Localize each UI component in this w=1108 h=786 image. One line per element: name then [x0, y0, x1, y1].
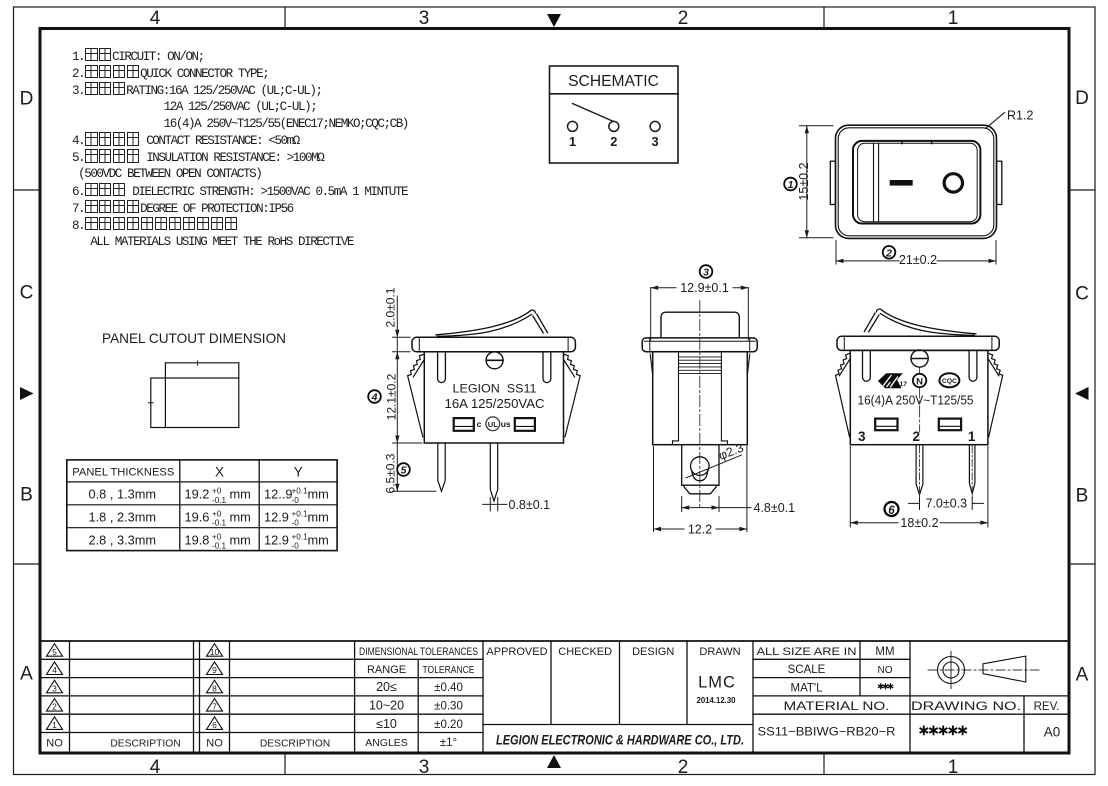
svg-text:-0: -0 [292, 542, 300, 551]
svg-text:12.1±0.2: 12.1±0.2 [385, 373, 399, 420]
svg-text:+0.1: +0.1 [292, 510, 309, 519]
svg-text:±0.40: ±0.40 [434, 682, 463, 694]
svg-text:2.0±0.1: 2.0±0.1 [384, 287, 398, 327]
svg-text:2: 2 [885, 248, 892, 260]
svg-text:19.2: 19.2 [185, 487, 210, 502]
svg-text:18±0.2: 18±0.2 [900, 516, 938, 530]
svg-text:C: C [1075, 284, 1089, 305]
svg-text:SCALE: SCALE [788, 664, 826, 676]
svg-text:SS11−BBIWG−RB20−R: SS11−BBIWG−RB20−R [758, 725, 896, 739]
svg-text:N: N [916, 376, 923, 387]
svg-text:RANGE: RANGE [367, 664, 406, 676]
svg-text:1: 1 [788, 179, 794, 191]
svg-text:DESIGN: DESIGN [632, 646, 674, 658]
svg-text:UL: UL [488, 420, 498, 429]
svg-text:CQC: CQC [942, 378, 957, 385]
svg-text:8: 8 [212, 683, 217, 693]
svg-text:A: A [1076, 665, 1089, 686]
svg-text:LMC: LMC [698, 674, 736, 692]
svg-text:Y: Y [294, 465, 303, 480]
svg-text:+0.1: +0.1 [292, 487, 309, 496]
svg-text:12.9±0.1: 12.9±0.1 [680, 281, 729, 295]
svg-text:TOLERANCE: TOLERANCE [423, 665, 475, 676]
svg-text:4: 4 [371, 392, 378, 404]
svg-text:5: 5 [52, 647, 57, 657]
svg-text:LEGION ELECTRONIC & HARDWARE C: LEGION ELECTRONIC & HARDWARE CO., LTD. [496, 733, 744, 748]
svg-text:10~20: 10~20 [369, 699, 404, 713]
svg-text:-0: -0 [292, 519, 300, 528]
svg-text:±0.20: ±0.20 [434, 719, 463, 731]
svg-text:2: 2 [913, 429, 921, 444]
svg-text:2: 2 [610, 134, 617, 149]
svg-text:12..9: 12..9 [264, 487, 292, 502]
svg-text:DESCRIPTION: DESCRIPTION [260, 738, 330, 749]
svg-text:+0.1: +0.1 [292, 532, 309, 541]
svg-text:7: 7 [212, 702, 217, 712]
svg-text:ALL SIZE ARE IN: ALL SIZE ARE IN [757, 646, 857, 658]
svg-text:+0: +0 [212, 510, 222, 519]
svg-text:+0: +0 [212, 532, 222, 541]
svg-text:DRAWN: DRAWN [699, 646, 740, 658]
svg-text:1: 1 [948, 8, 959, 29]
svg-text:3: 3 [52, 683, 57, 693]
svg-text:B: B [1076, 486, 1089, 507]
svg-text:3: 3 [858, 429, 866, 444]
svg-text:3: 3 [419, 757, 430, 778]
svg-text:1: 1 [948, 757, 959, 778]
svg-text:D: D [20, 89, 34, 110]
svg-text:-0.1: -0.1 [212, 519, 227, 528]
svg-text:19.8: 19.8 [185, 532, 210, 547]
svg-text:MM: MM [875, 646, 894, 658]
svg-text:R1.2: R1.2 [1007, 109, 1033, 123]
svg-text:A0: A0 [1044, 725, 1061, 740]
svg-text:4: 4 [150, 757, 161, 778]
svg-text:6: 6 [888, 505, 895, 517]
svg-text:16(4)A 250V~T125/55: 16(4)A 250V~T125/55 [858, 392, 974, 407]
svg-text:us: us [501, 419, 511, 429]
svg-text:+0: +0 [212, 487, 222, 496]
svg-text:-0.1: -0.1 [212, 496, 227, 505]
svg-text:2.8 , 3.3mm: 2.8 , 3.3mm [89, 532, 157, 547]
svg-text:LEGION SS11: LEGION SS11 [453, 382, 537, 396]
svg-text:17: 17 [900, 381, 908, 388]
svg-text:3: 3 [703, 267, 709, 279]
svg-text:0.8 , 1.3mm: 0.8 , 1.3mm [89, 487, 157, 502]
svg-text:5: 5 [401, 465, 407, 477]
svg-text:±0.30: ±0.30 [434, 701, 463, 713]
svg-text:1: 1 [569, 134, 576, 149]
svg-text:NO: NO [206, 737, 223, 749]
svg-text:3: 3 [419, 8, 430, 29]
svg-text:12.9: 12.9 [264, 510, 289, 525]
svg-text:D: D [1075, 88, 1089, 109]
svg-text:CHECKED: CHECKED [558, 646, 612, 658]
svg-text:15±0.2: 15±0.2 [797, 162, 811, 200]
svg-text:9: 9 [212, 665, 217, 675]
svg-text:SCHEMATIC: SCHEMATIC [568, 73, 659, 90]
svg-text:APPROVED: APPROVED [486, 646, 547, 658]
svg-text:mm: mm [308, 487, 329, 502]
svg-text:12.2: 12.2 [688, 522, 712, 536]
svg-text:6.5±0.3: 6.5±0.3 [384, 453, 398, 493]
svg-text:16A 125/250VAC: 16A 125/250VAC [445, 396, 545, 411]
svg-text:mm: mm [230, 487, 251, 502]
svg-text:REV.: REV. [1034, 701, 1060, 713]
svg-text:20≤: 20≤ [376, 680, 397, 694]
svg-text:≤10: ≤10 [376, 717, 397, 731]
svg-text:4.8±0.1: 4.8±0.1 [754, 501, 796, 515]
svg-text:MATERIAL NO.: MATERIAL NO. [784, 701, 890, 713]
svg-text:DIMENSIONAL TOLERANCES: DIMENSIONAL TOLERANCES [359, 646, 478, 658]
svg-text:21±0.2: 21±0.2 [899, 253, 937, 267]
svg-text:6: 6 [212, 720, 217, 730]
svg-text:±1°: ±1° [440, 737, 457, 749]
svg-text:12.9: 12.9 [264, 532, 289, 547]
svg-text:2014.12.30: 2014.12.30 [696, 696, 736, 705]
svg-text:DRAWING NO.: DRAWING NO. [911, 699, 1021, 713]
svg-text:7.0±0.3: 7.0±0.3 [926, 497, 968, 511]
svg-text:MAT'L: MAT'L [790, 683, 823, 695]
svg-text:c: c [477, 419, 482, 429]
svg-text:mm: mm [308, 532, 329, 547]
svg-text:3: 3 [652, 134, 659, 149]
svg-text:PANEL THICKNESS: PANEL THICKNESS [72, 467, 174, 479]
svg-text:ANGLES: ANGLES [365, 737, 408, 749]
svg-text:-0: -0 [292, 496, 300, 505]
svg-text:A: A [20, 664, 33, 685]
svg-text:1: 1 [968, 429, 976, 444]
svg-text:2: 2 [52, 702, 57, 712]
svg-text:1: 1 [52, 720, 57, 730]
svg-text:-0.1: -0.1 [212, 542, 227, 551]
svg-text:PANEL CUTOUT DIMENSION: PANEL CUTOUT DIMENSION [102, 331, 286, 346]
svg-text:NO: NO [878, 665, 893, 676]
svg-text:mm: mm [230, 532, 251, 547]
svg-text:2: 2 [678, 757, 689, 778]
svg-text:C: C [20, 283, 34, 304]
svg-text:DESCRIPTION: DESCRIPTION [110, 738, 180, 749]
svg-text:19.6: 19.6 [185, 510, 210, 525]
svg-text:4: 4 [52, 665, 57, 675]
svg-text:4: 4 [150, 8, 161, 29]
svg-text:10: 10 [210, 647, 220, 657]
svg-text:1.8 , 2.3mm: 1.8 , 2.3mm [89, 510, 157, 525]
svg-text:mm: mm [308, 510, 329, 525]
svg-text:0.8±0.1: 0.8±0.1 [509, 498, 551, 512]
svg-text:2: 2 [678, 8, 689, 29]
svg-text:B: B [20, 485, 33, 506]
svg-text:mm: mm [230, 510, 251, 525]
svg-text:X: X [215, 465, 224, 480]
svg-text:NO: NO [46, 737, 63, 749]
